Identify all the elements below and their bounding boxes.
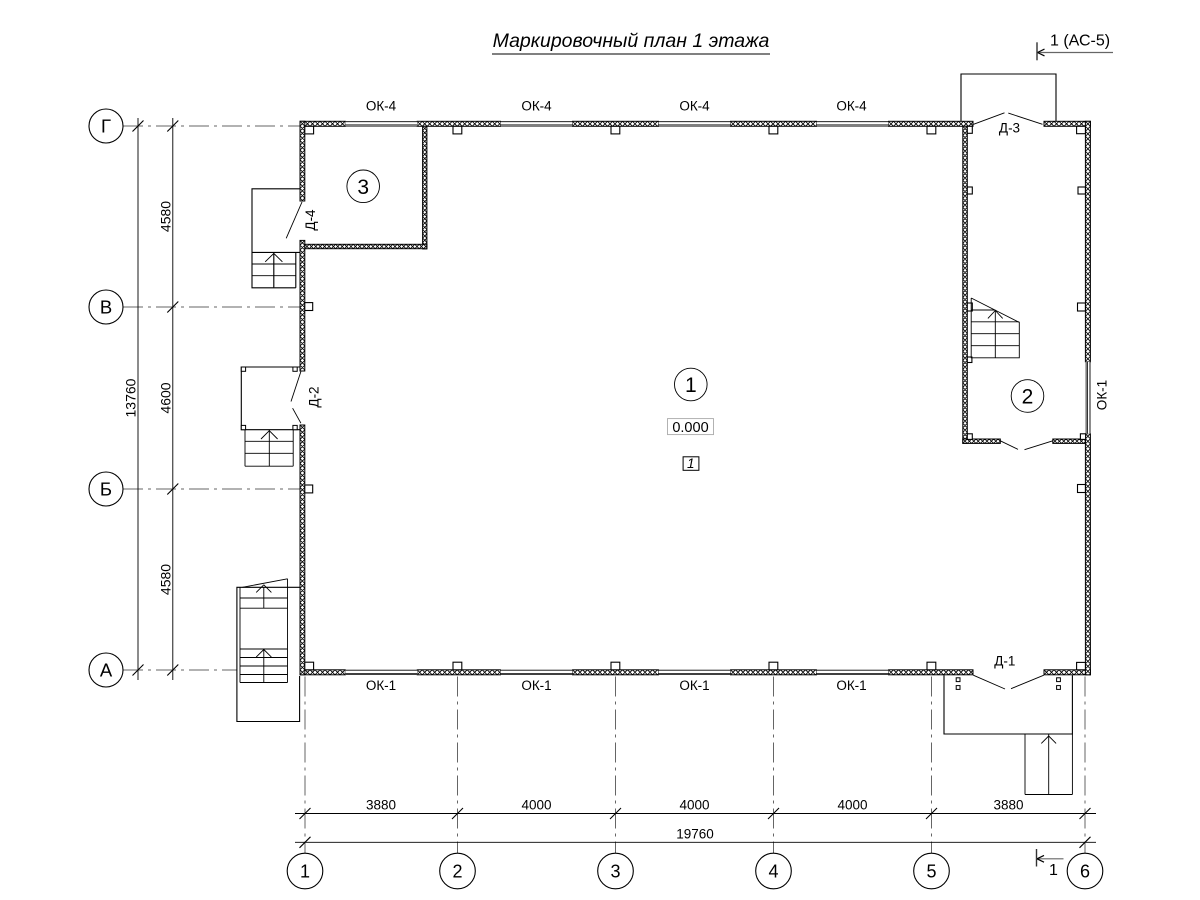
svg-text:А: А (100, 660, 113, 681)
svg-text:ОК-4: ОК-4 (679, 99, 710, 114)
svg-text:Д-2: Д-2 (307, 386, 322, 407)
svg-text:3: 3 (610, 861, 620, 881)
svg-text:5: 5 (926, 861, 936, 881)
svg-text:4600: 4600 (157, 382, 173, 413)
svg-text:4000: 4000 (521, 798, 551, 813)
svg-text:4: 4 (768, 861, 778, 881)
svg-text:0.000: 0.000 (672, 420, 708, 436)
svg-text:2: 2 (1022, 386, 1034, 409)
svg-text:ОК-1: ОК-1 (836, 678, 866, 693)
svg-text:Д-4: Д-4 (303, 209, 318, 231)
svg-text:6: 6 (1080, 861, 1090, 881)
svg-text:ОК-1: ОК-1 (366, 678, 396, 693)
svg-text:ОК-4: ОК-4 (366, 99, 397, 114)
svg-text:Г: Г (101, 116, 111, 137)
svg-text:1 (АС-5): 1 (АС-5) (1050, 32, 1110, 49)
svg-text:ОК-4: ОК-4 (521, 99, 552, 114)
svg-text:13760: 13760 (123, 378, 139, 417)
svg-text:Д-1: Д-1 (994, 654, 1015, 669)
svg-text:Маркировочный план 1 этажа: Маркировочный план 1 этажа (493, 30, 770, 52)
svg-text:2: 2 (452, 861, 462, 881)
svg-text:ОК-4: ОК-4 (836, 99, 867, 114)
svg-text:1: 1 (685, 374, 697, 397)
svg-text:Д-3: Д-3 (999, 121, 1020, 136)
svg-text:В: В (100, 297, 112, 318)
svg-text:4000: 4000 (837, 798, 867, 813)
svg-text:19760: 19760 (676, 826, 714, 841)
svg-text:3880: 3880 (366, 798, 396, 813)
svg-text:ОК-1: ОК-1 (521, 678, 551, 693)
svg-text:3880: 3880 (993, 798, 1023, 813)
svg-text:4580: 4580 (157, 564, 173, 595)
svg-text:1: 1 (687, 456, 695, 471)
svg-text:ОК-1: ОК-1 (679, 678, 709, 693)
svg-text:1: 1 (300, 861, 310, 881)
svg-text:Б: Б (100, 479, 112, 500)
svg-text:ОК-1: ОК-1 (1095, 380, 1110, 410)
svg-text:3: 3 (357, 176, 369, 199)
svg-text:4000: 4000 (679, 798, 709, 813)
svg-text:1: 1 (1049, 862, 1058, 879)
svg-text:4580: 4580 (157, 201, 173, 232)
